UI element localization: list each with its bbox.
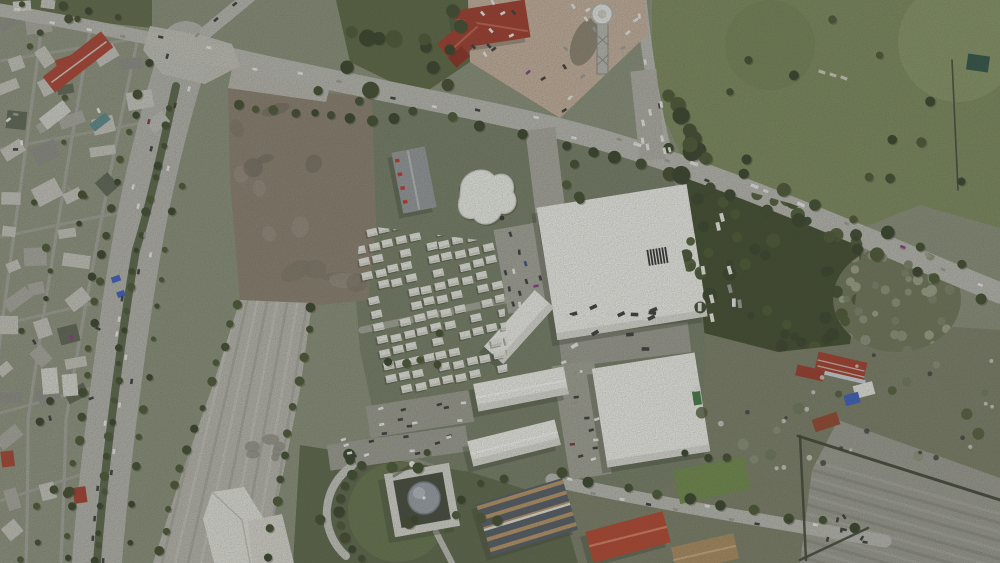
satellite-image [0,0,1000,563]
photo-grain-overlay [0,0,1000,563]
scene-svg [0,0,1000,563]
